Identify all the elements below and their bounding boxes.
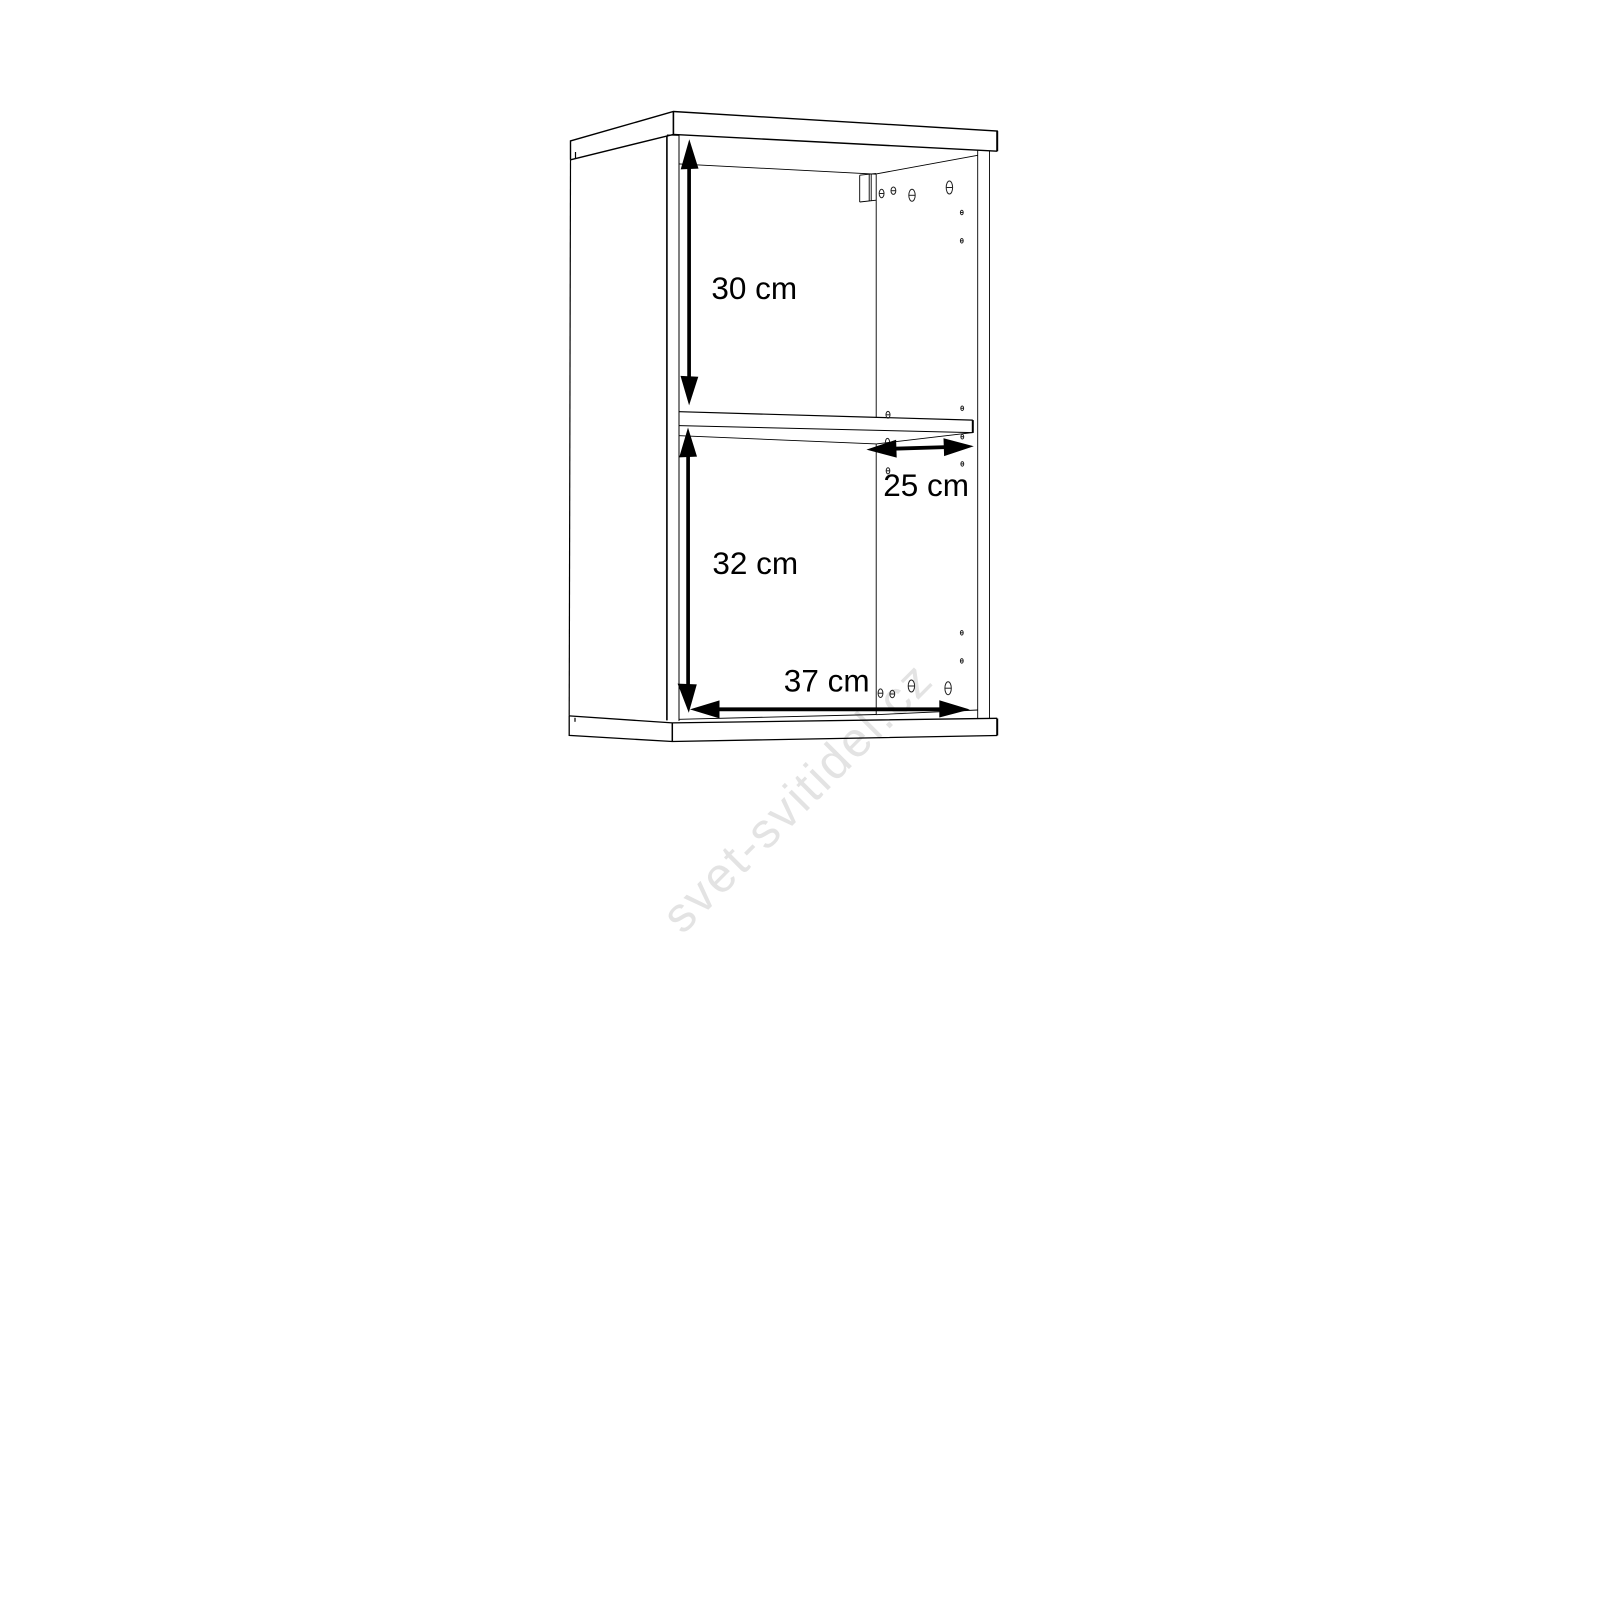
svg-text:37 cm: 37 cm — [784, 663, 870, 699]
svg-text:25 cm: 25 cm — [883, 467, 969, 503]
svg-text:30 cm: 30 cm — [711, 270, 797, 306]
svg-text:32 cm: 32 cm — [712, 545, 798, 581]
